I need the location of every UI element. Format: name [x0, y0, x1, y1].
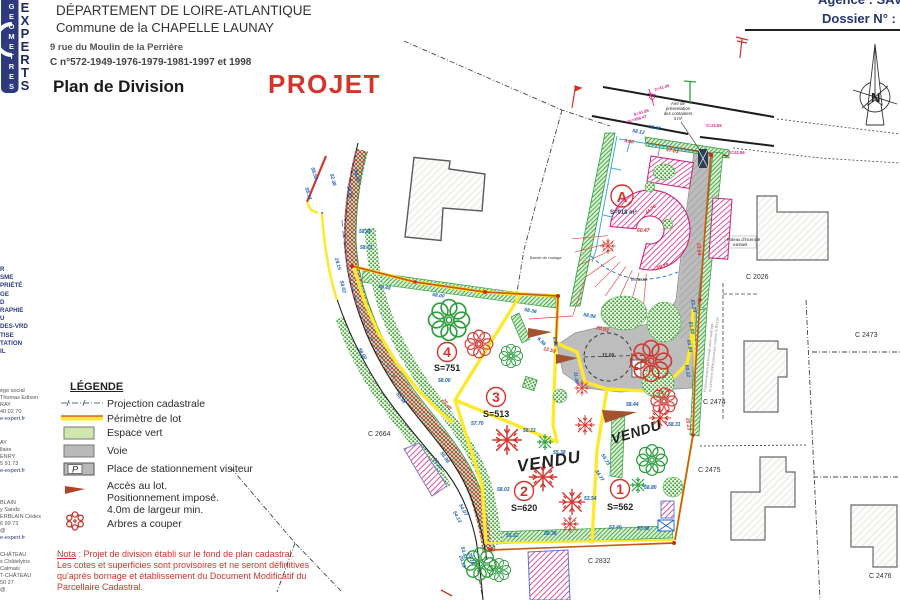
- svg-text:P: P: [634, 367, 639, 374]
- svg-text:S=751: S=751: [434, 363, 460, 373]
- svg-text:P: P: [72, 465, 78, 475]
- svg-text:53.54: 53.54: [584, 496, 597, 502]
- svg-text:58.00: 58.00: [438, 378, 451, 384]
- svg-text:58.98: 58.98: [583, 312, 597, 320]
- svg-text:53.42: 53.42: [459, 546, 468, 560]
- svg-text:C 2832: C 2832: [588, 558, 611, 565]
- svg-text:60.94: 60.94: [685, 339, 693, 353]
- svg-text:58.12: 58.12: [632, 128, 646, 136]
- svg-text:57.70: 57.70: [471, 421, 484, 427]
- svg-text:S=41.85: S=41.85: [633, 108, 650, 117]
- svg-text:S: S: [9, 82, 14, 91]
- svg-text:C 2473: C 2473: [855, 332, 878, 339]
- svg-text:58.36: 58.36: [524, 307, 538, 315]
- svg-text:61.02: 61.02: [687, 321, 695, 335]
- svg-text:4: 4: [443, 344, 451, 360]
- svg-text:54.12: 54.12: [431, 457, 443, 471]
- svg-text:S=513: S=513: [483, 409, 509, 419]
- svg-text:Positionnement du bornage selo: Positionnement du bornage selon repérage: [703, 323, 714, 392]
- svg-text:C 2475: C 2475: [698, 467, 721, 474]
- svg-text:1: 1: [616, 481, 624, 497]
- svg-text:20.03: 20.03: [595, 325, 610, 334]
- svg-text:C 2026: C 2026: [746, 274, 769, 281]
- svg-text:58.71: 58.71: [360, 245, 373, 251]
- svg-text:58.00: 58.00: [432, 292, 445, 300]
- svg-text:Poteau d'incendie: Poteau d'incendie: [727, 237, 761, 242]
- svg-text:28.16: 28.16: [466, 551, 476, 566]
- svg-text:57.40: 57.40: [609, 525, 622, 531]
- svg-text:29.19: 29.19: [457, 554, 467, 569]
- svg-text:Terrasse: Terrasse: [630, 277, 648, 282]
- svg-text:S=562: S=562: [607, 502, 633, 512]
- svg-text:44.76: 44.76: [644, 204, 658, 218]
- svg-text:VENDU: VENDU: [516, 447, 583, 476]
- svg-text:2: 2: [520, 483, 528, 499]
- svg-text:S: S: [21, 78, 30, 93]
- svg-text:N: N: [871, 90, 880, 105]
- svg-text:présentation: présentation: [666, 106, 691, 111]
- svg-text:58.60: 58.60: [356, 347, 368, 361]
- svg-text:58.02: 58.02: [338, 280, 347, 294]
- svg-text:61.24: 61.24: [689, 299, 697, 313]
- svg-text:C 2474: C 2474: [703, 399, 726, 406]
- svg-text:E: E: [9, 12, 14, 21]
- svg-text:55.38: 55.38: [553, 450, 566, 456]
- svg-text:S=41.55: S=41.55: [706, 123, 722, 128]
- svg-text:54.07: 54.07: [457, 503, 468, 517]
- svg-text:5.80: 5.80: [624, 138, 635, 146]
- svg-text:58.33: 58.33: [523, 428, 536, 434]
- svg-text:T: T: [9, 52, 14, 61]
- svg-text:58.36: 58.36: [345, 185, 354, 199]
- svg-text:la commune 600/p panneaux expe: la commune 600/p panneaux experts la RV1…: [708, 317, 720, 392]
- svg-text:G: G: [9, 2, 15, 11]
- svg-text:25.45: 25.45: [440, 397, 453, 412]
- svg-text:34.77: 34.77: [593, 469, 605, 483]
- svg-text:VENDU: VENDU: [609, 416, 663, 446]
- svg-text:58.40: 58.40: [648, 124, 662, 132]
- svg-text:6.00: 6.00: [551, 336, 558, 347]
- svg-text:58.03: 58.03: [497, 487, 510, 493]
- svg-text:17.03: 17.03: [666, 147, 680, 155]
- svg-text:11.00: 11.00: [572, 371, 580, 384]
- svg-text:58.80: 58.80: [644, 485, 657, 491]
- svg-text:54.13: 54.13: [451, 510, 462, 524]
- svg-text:23.54: 23.54: [695, 242, 702, 256]
- svg-text:M: M: [8, 32, 14, 41]
- svg-text:O: O: [9, 22, 15, 31]
- svg-text:des containers: des containers: [664, 111, 693, 116]
- svg-text:A: A: [617, 189, 628, 206]
- svg-text:60.47: 60.47: [637, 228, 650, 234]
- svg-text:P: P: [643, 368, 648, 375]
- svg-text:Sr=456.47: Sr=456.47: [627, 114, 648, 124]
- svg-text:57.98: 57.98: [637, 526, 650, 532]
- svg-text:58.38: 58.38: [544, 531, 557, 537]
- svg-text:55.98: 55.98: [394, 392, 407, 406]
- svg-text:existant: existant: [733, 242, 748, 247]
- svg-text:19.15: 19.15: [333, 257, 342, 271]
- svg-text:58.34: 58.34: [303, 187, 313, 201]
- svg-text:58.58: 58.58: [352, 169, 361, 183]
- svg-text:20.23: 20.23: [684, 416, 692, 430]
- svg-text:Aire de: Aire de: [671, 101, 685, 106]
- svg-text:49.79: 49.79: [655, 262, 670, 272]
- svg-text:56.08: 56.08: [438, 451, 450, 465]
- svg-text:Bande de roulage: Bande de roulage: [530, 255, 562, 260]
- svg-text:S=620: S=620: [511, 503, 537, 513]
- svg-text:58.80: 58.80: [359, 229, 372, 235]
- svg-text:58.48: 58.48: [378, 284, 391, 292]
- svg-text:C 2476: C 2476: [869, 573, 892, 580]
- svg-text:R: R: [9, 62, 15, 71]
- svg-text:58.31: 58.31: [668, 422, 681, 428]
- svg-text:58.58: 58.58: [309, 167, 319, 181]
- svg-text:55.73: 55.73: [599, 453, 611, 467]
- svg-text:55.52: 55.52: [506, 533, 519, 539]
- svg-text:58.44: 58.44: [626, 402, 639, 408]
- svg-text:E: E: [9, 72, 14, 81]
- svg-text:60.12: 60.12: [683, 364, 691, 378]
- svg-text:3: 3: [492, 389, 500, 405]
- svg-text:S=41.56: S=41.56: [729, 150, 745, 155]
- svg-text:11.00: 11.00: [602, 353, 614, 359]
- svg-text:6.56: 6.56: [536, 336, 547, 347]
- svg-text:12.59: 12.59: [543, 346, 557, 355]
- svg-text:C 2664: C 2664: [368, 431, 391, 438]
- svg-text:2=41.45: 2=41.45: [654, 83, 671, 92]
- svg-text:4 m²: 4 m²: [674, 116, 683, 121]
- svg-text:52.38: 52.38: [328, 173, 337, 187]
- svg-text:S=918 m²: S=918 m²: [610, 209, 637, 216]
- svg-text:E: E: [9, 42, 14, 51]
